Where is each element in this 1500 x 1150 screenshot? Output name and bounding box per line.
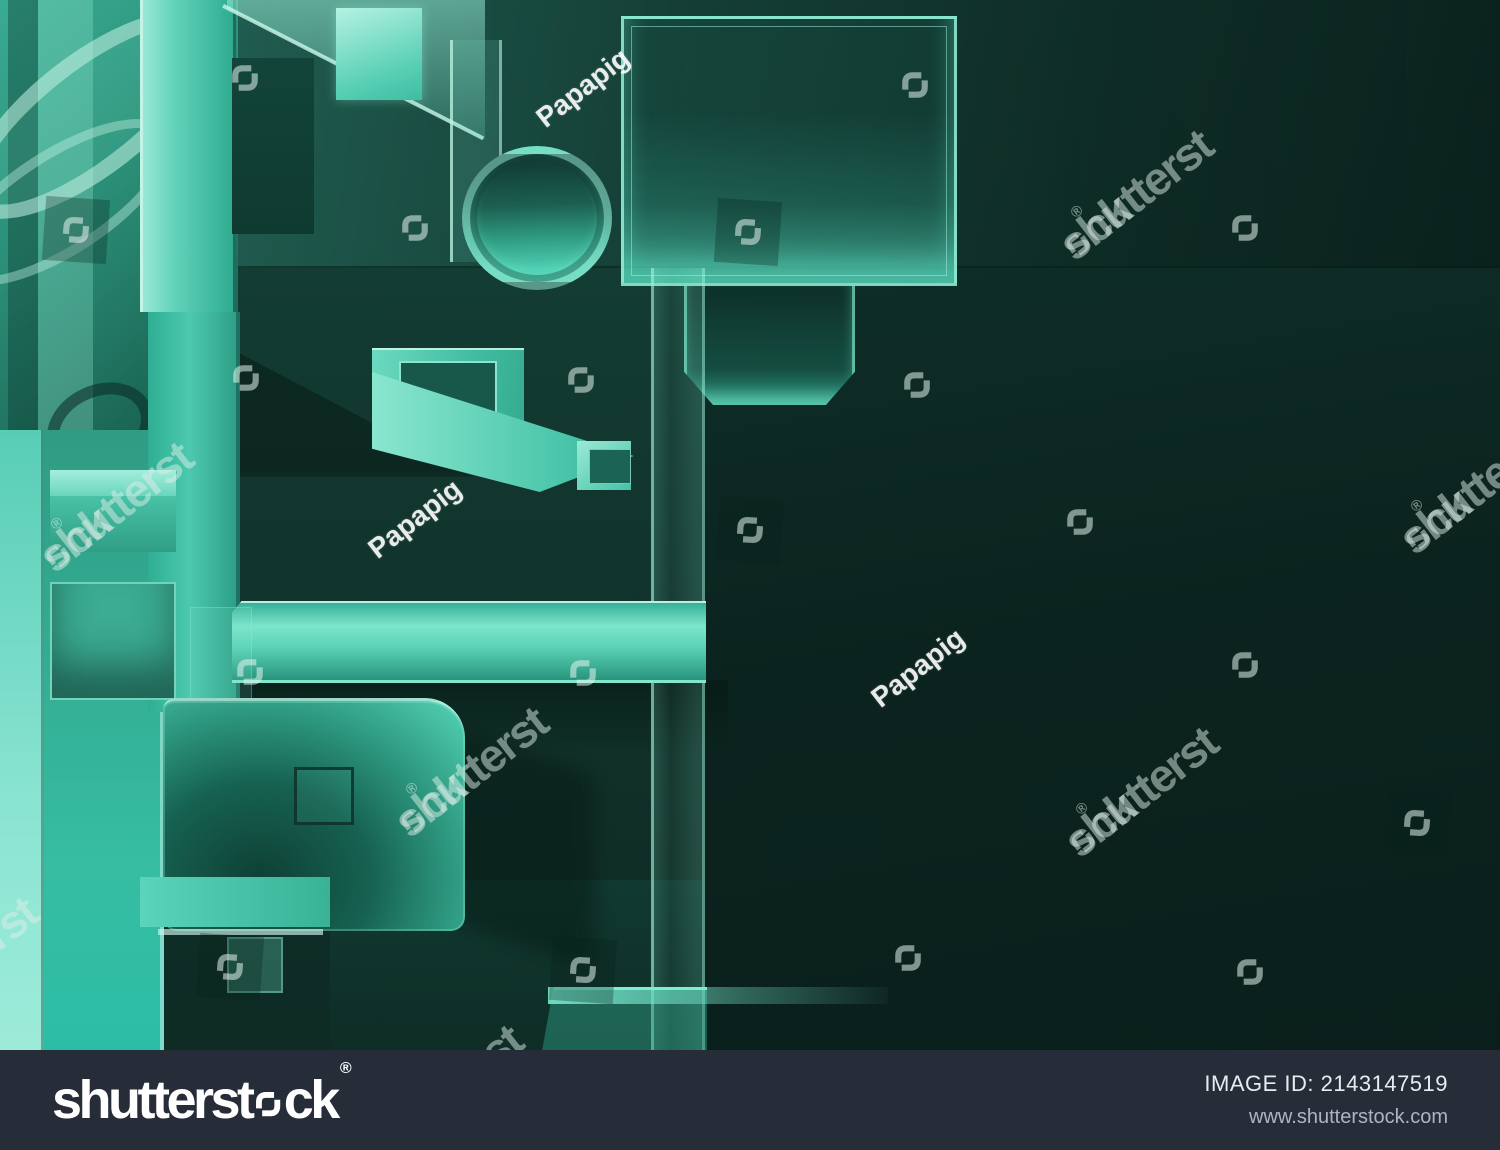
shutterstock-s-icon: [1064, 506, 1096, 538]
watermark-text: shutterstck®: [1056, 805, 1115, 865]
shutterstock-s-icon: [716, 496, 784, 564]
shutterstock-s-icon: [1229, 212, 1261, 244]
shutterstock-s-icon: [1229, 649, 1261, 681]
watermark-text: shutterstck®: [1051, 208, 1110, 268]
image-id: IMAGE ID: 2143147519: [1204, 1070, 1448, 1098]
shutterstock-s-icon: [549, 936, 617, 1004]
shutterstock-s-icon: [399, 212, 431, 244]
shutterstock-logo: shutterstck®: [52, 1073, 352, 1127]
registered-mark: ®: [340, 1060, 352, 1077]
shutterstock-s-icon: [1234, 956, 1266, 988]
author-watermark: Papapig: [865, 622, 971, 714]
shutterstock-s-icon: [229, 62, 261, 94]
shutterstock-s-icon: [565, 364, 597, 396]
watermark-text: shutterstck®: [1391, 502, 1450, 562]
shutterstock-s-icon: [234, 656, 266, 688]
author-watermark: Papapig: [362, 473, 468, 565]
shutterstock-s-icon: [899, 69, 931, 101]
shutterstock-s-icon: [1383, 789, 1451, 857]
image-meta: IMAGE ID: 2143147519 www.shutterstock.co…: [1204, 1070, 1448, 1130]
shutterstock-s-icon: [901, 369, 933, 401]
watermark-layer: shutterstck® shutterstck® shutterstck® s…: [0, 0, 1500, 1050]
watermark-text: shutterstck®: [31, 520, 90, 580]
shutterstock-s-icon: [230, 362, 262, 394]
author-watermark: Papapig: [530, 42, 636, 134]
stock-image-preview: shutterstck® shutterstck® shutterstck® s…: [0, 0, 1500, 1150]
shutterstock-s-icon: [253, 1089, 283, 1119]
shutterstock-s-icon: [42, 196, 110, 264]
shutterstock-s-icon: [196, 933, 264, 1001]
logo-text: shutterst: [52, 1070, 252, 1130]
abstract-3d-artwork: shutterstck® shutterstck® shutterstck® s…: [0, 0, 1500, 1050]
shutterstock-s-icon: [714, 198, 782, 266]
website-url: www.shutterstock.com: [1204, 1105, 1448, 1130]
logo-text: ck: [284, 1070, 337, 1130]
shutterstock-footer-bar: shutterstck® IMAGE ID: 2143147519 www.sh…: [0, 1050, 1500, 1150]
shutterstock-s-icon: [567, 657, 599, 689]
shutterstock-s-icon: [892, 942, 924, 974]
watermark-text: shutterstck®: [386, 785, 445, 845]
